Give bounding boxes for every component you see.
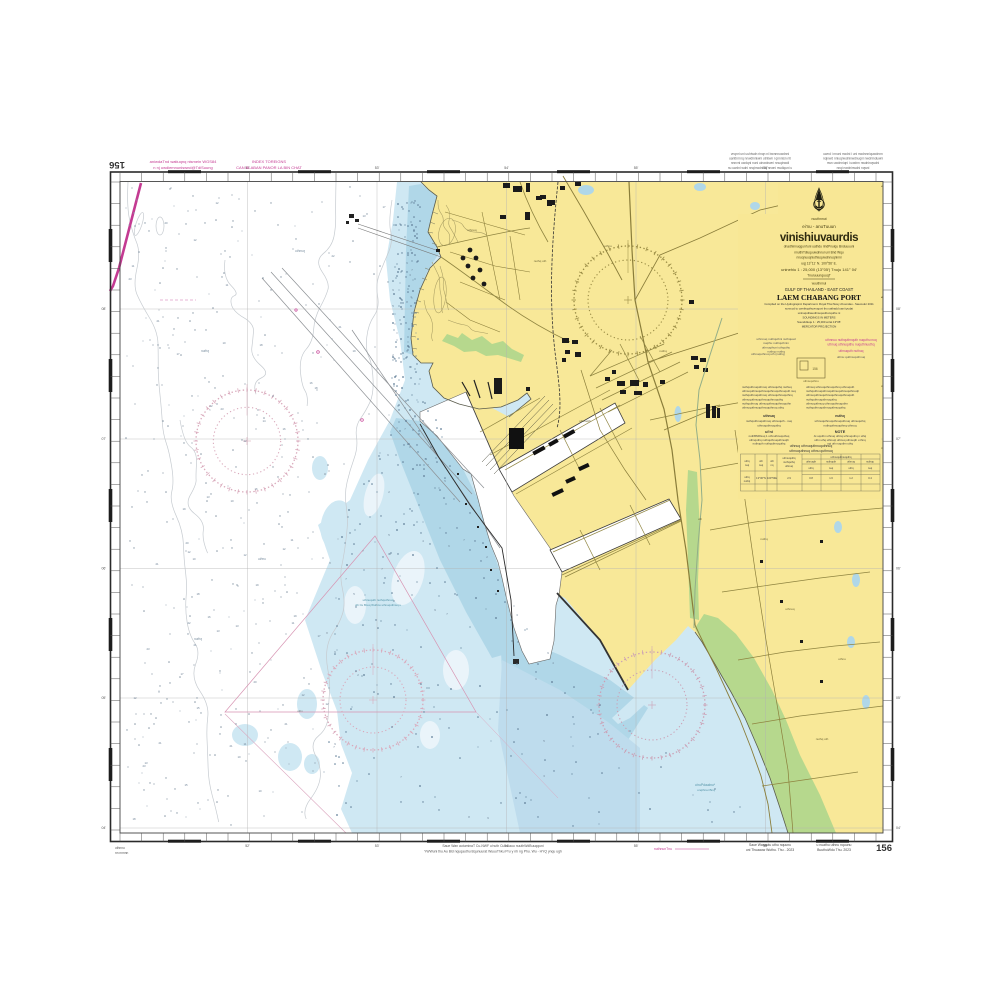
- svg-text:20: 20: [164, 221, 168, 225]
- svg-text:u'nuPduudnu*: u'nuPduudnu*: [695, 783, 716, 787]
- svg-text:dnadhinnuqquni'uni uathdu rind: dnadhinnuqquni'uni uathdu rindPnuiqu Bnd…: [784, 245, 855, 249]
- svg-text:11: 11: [132, 264, 135, 268]
- svg-text:nuthquthnuquthnq uthnuq: nuthquthnuquthnq uthnuq: [824, 424, 857, 428]
- svg-text:Saue Wan autuminaT Cu-NWF u'nu: Saue Wan autuminaT Cu-NWF u'nuth Cu nuau…: [442, 844, 544, 848]
- svg-text:uthnuquthnuquthnuquthnuq uthq: uthnuquthnuquthnuquthnuq uthq: [742, 406, 784, 410]
- svg-text:uthq: uthq: [744, 459, 750, 463]
- svg-text:nuuthnnut: nuuthnnut: [811, 217, 826, 221]
- svg-text:10: 10: [230, 499, 234, 503]
- svg-text:10: 10: [192, 557, 196, 561]
- svg-text:54': 54': [504, 166, 509, 170]
- svg-text:0.4: 0.4: [868, 476, 872, 480]
- svg-text:nuthq uth: nuthq uth: [816, 737, 829, 741]
- svg-text:nuthq uth: nuthq uth: [534, 259, 547, 263]
- svg-text:uthnuq: uthnuq: [847, 460, 855, 464]
- svg-text:16: 16: [254, 487, 258, 491]
- svg-text:05': 05': [896, 696, 901, 700]
- svg-text:22: 22: [187, 621, 191, 625]
- svg-text:12: 12: [215, 201, 219, 205]
- svg-text:YWWuni thu Au Bld nquqauthu Bq: YWWuni thu Au Bld nquqauthu Bqunuurat Wu…: [424, 850, 562, 854]
- svg-text:07': 07': [896, 437, 901, 441]
- svg-text:12: 12: [301, 693, 305, 697]
- svg-text:15: 15: [196, 706, 200, 710]
- svg-text:SOUNDINGS IN METERS: SOUNDINGS IN METERS: [803, 316, 836, 320]
- svg-text:u nuathu uthnu nquunu: u nuathu uthnu nquunu: [817, 843, 852, 847]
- svg-text:uth: uth: [698, 517, 703, 521]
- svg-text:nnnvni uwdqni nuni uinwdnwni n: nnnvni uwdqni nuni uinwdnwni nnuqinwdi: [731, 161, 790, 165]
- svg-text:nuthq: nuthq: [744, 479, 751, 483]
- svg-text:19: 19: [293, 614, 297, 618]
- svg-text:uthnnu: uthnnu: [115, 846, 125, 850]
- svg-text:nuthquthnuquthnuquthnuquthq: nuthquthnuquthnuquthnuquthq: [806, 406, 846, 410]
- svg-text:18: 18: [132, 817, 136, 821]
- svg-text:11: 11: [292, 621, 295, 625]
- svg-text:12: 12: [243, 439, 247, 443]
- svg-text:21: 21: [284, 722, 288, 726]
- svg-text:06': 06': [896, 567, 901, 571]
- svg-text:52': 52': [245, 844, 250, 848]
- svg-text:nnuqnuuqniuthiuquwdnnuqninni: nnuqnuuqniuthiuquwdnnuqninni: [796, 256, 841, 260]
- svg-text:nn nnnnn: nn nnnnn: [115, 851, 129, 855]
- svg-text:uwnd i nnuni nwdni i uni nwdnn: uwnd i nnuni nwdni i uni nwdnnniquwdnnn: [823, 152, 883, 156]
- svg-text:17: 17: [317, 634, 321, 638]
- svg-text:LAEM CHABANG PORT: LAEM CHABANG PORT: [777, 293, 861, 302]
- svg-text:uthnuquthnuq uthnu quthnuq: uthnuquthnuq uthnu quthnuq: [789, 449, 832, 453]
- svg-text:156: 156: [876, 843, 892, 854]
- svg-text:53': 53': [375, 166, 380, 170]
- svg-text:23: 23: [128, 277, 132, 281]
- svg-text:uthq: uthq: [848, 466, 854, 470]
- svg-text:nuthquthq: nuthquthq: [783, 460, 795, 464]
- svg-text:nuthquth: nuthquth: [826, 460, 837, 464]
- svg-text:21: 21: [156, 319, 160, 323]
- svg-text:wuuthnnui: wuuthnnui: [812, 282, 827, 286]
- svg-text:nnuthiTdiuquuwdnnui uni Bnd Wq: nnuthiTdiuquuwdnnui uni Bnd Wqu: [794, 251, 844, 255]
- svg-text:uqj 13°11' N. 100°56' E.: uqj 13°11' N. 100°56' E.: [801, 262, 837, 266]
- svg-text:nuthq: nuthq: [835, 414, 844, 418]
- svg-text:uthnu: uthnu: [838, 657, 846, 661]
- svg-text:ei'nu - anuTuuun: ei'nu - anuTuuun: [802, 224, 836, 229]
- svg-text:11: 11: [226, 283, 229, 287]
- svg-text:nuthq: nuthq: [194, 637, 202, 641]
- svg-text:BuuthuWdu Thu. 2023: BuuthuWdu Thu. 2023: [817, 848, 851, 852]
- svg-text:13°06°N: 13°06°N: [756, 476, 766, 480]
- svg-text:uthnuquthq: uthnuquthq: [783, 456, 797, 460]
- svg-text:12: 12: [133, 696, 137, 700]
- svg-text:uthnuquthnuq uth (nuthq): uthnuquthnuq uth (nuthq): [751, 352, 785, 356]
- svg-text:53': 53': [375, 844, 380, 848]
- svg-text:GULF OF THAILAND - EAST COAST: GULF OF THAILAND - EAST COAST: [785, 287, 854, 292]
- svg-text:uthnuq: uthnuq: [467, 228, 477, 232]
- svg-text:17: 17: [382, 205, 386, 209]
- svg-text:nu uwdni wdni nnqinwdniuq nnwn: nu uwdni wdni nnqinwdniuq nnwni nwdiquni…: [728, 166, 793, 170]
- svg-text:11: 11: [244, 742, 247, 746]
- svg-text:uthnuq: uthnuq: [763, 414, 775, 418]
- svg-text:uthn: uthn: [297, 709, 303, 713]
- svg-text:14: 14: [262, 419, 266, 423]
- svg-text:nuthq: nuthq: [659, 349, 667, 353]
- svg-text:unqthnui Bnq: unqthnui Bnq: [697, 788, 715, 792]
- svg-text:uthnu: uthnu: [258, 557, 266, 561]
- svg-text:nuthnunTnu: nuthnunTnu: [654, 847, 672, 851]
- svg-text:21: 21: [193, 643, 197, 647]
- svg-text:11: 11: [291, 538, 294, 542]
- svg-text:uthnuquthnu: uthnuquthnu: [803, 379, 819, 383]
- svg-text:uth: uth: [759, 459, 763, 463]
- svg-text:INDEX TOREIGNS: INDEX TOREIGNS: [252, 159, 286, 164]
- svg-text:TnuiuuunquuqT: TnuiuuunquuqT: [807, 274, 831, 278]
- svg-text:nuthq: nuthq: [760, 537, 768, 541]
- svg-text:12: 12: [193, 238, 197, 242]
- svg-text:19: 19: [182, 507, 186, 511]
- svg-text:156: 156: [812, 367, 818, 371]
- svg-text:13: 13: [144, 761, 148, 765]
- svg-text:55': 55': [634, 844, 639, 848]
- svg-text:17: 17: [176, 352, 180, 356]
- svg-text:uth Cu Bnuq Wuthnu uthnuquthnu: uth Cu Bnuq Wuthnu uthnuquthnuq u: [355, 603, 402, 607]
- svg-text:13: 13: [216, 629, 220, 633]
- svg-text:CAN BLABAN PANOR LA BIN CHAT: CAN BLABAN PANOR LA BIN CHAT: [236, 165, 302, 170]
- svg-text:04': 04': [101, 826, 106, 830]
- svg-text:uthnuquthnuquthq: uthnuquthnuquthq: [757, 424, 781, 428]
- svg-text:nuthq: nuthq: [201, 349, 209, 353]
- svg-text:uanttni inq nnwdinniwni utntiw: uanttni inq nnwdinniwni utntiwn i qnnnis…: [729, 157, 791, 161]
- svg-text:10: 10: [222, 341, 226, 345]
- svg-text:19: 19: [352, 349, 356, 353]
- svg-text:0.8: 0.8: [809, 476, 813, 480]
- svg-text:05': 05': [101, 696, 106, 700]
- svg-text:12: 12: [187, 550, 191, 554]
- svg-text:nuq: nuq: [745, 464, 750, 467]
- svg-text:nuq: nuq: [759, 464, 764, 467]
- svg-text:nuthquthnuquthnuq uthnuquth -: nuthquthnuquthnuq uthnuquth - nuq: [746, 419, 792, 423]
- svg-text:13: 13: [362, 214, 366, 218]
- svg-text:uth: uth: [770, 459, 774, 463]
- svg-text:16: 16: [282, 427, 286, 431]
- svg-text:12: 12: [325, 702, 329, 706]
- svg-text:uthnu: uthnu: [604, 244, 612, 248]
- svg-text:Compiled on the Hydrograpnic D: Compiled on the Hydrograpnic Department.…: [764, 302, 874, 306]
- svg-text:MERCATOR PROJECTION: MERCATOR PROJECTION: [802, 325, 837, 329]
- svg-text:12: 12: [243, 553, 247, 557]
- svg-text:156: 156: [109, 159, 125, 170]
- svg-text:13: 13: [206, 495, 210, 499]
- svg-text:20: 20: [253, 680, 257, 684]
- svg-text:1.6: 1.6: [829, 476, 833, 480]
- svg-text:18: 18: [314, 386, 318, 390]
- svg-text:23: 23: [146, 647, 150, 651]
- svg-text:uthnuquthnuquthq: uthnuquthnuquthq: [831, 455, 852, 459]
- svg-text:uthnuquthnuquthnuquthnuq uthnu: uthnuquthnuquthnuquthnuq uthnuquthq: [815, 419, 866, 423]
- svg-text:21: 21: [338, 325, 342, 329]
- svg-text:16: 16: [309, 381, 313, 385]
- svg-text:vinishiuvaurdis: vinishiuvaurdis: [780, 232, 858, 244]
- svg-text:55': 55': [634, 166, 639, 170]
- svg-text:21: 21: [229, 744, 233, 748]
- svg-text:uthnuquth nuthuq: uthnuquth nuthuq: [839, 349, 864, 353]
- svg-text:13: 13: [235, 624, 239, 628]
- svg-text:nnqi nwdninwdni nqwni: nnqi nwdninwdni nqwni: [837, 166, 870, 170]
- svg-text:07': 07': [101, 437, 106, 441]
- svg-text:uthnuqth: uthnuqth: [806, 460, 817, 464]
- svg-text:nuq: nuq: [829, 467, 834, 470]
- svg-text:aniwdaTnd watiuqnq nismein WGS: aniwdaTnd watiuqnq nismein WGS84: [150, 159, 217, 164]
- svg-text:uthnuqth: uthnuqth: [579, 419, 591, 423]
- svg-text:uthq: uthq: [808, 466, 814, 470]
- svg-text:08': 08': [896, 307, 901, 311]
- svg-text:uthnu quthnuquthnuq: uthnu quthnuquthnuq: [837, 355, 866, 359]
- svg-text:100°53E: 100°53E: [767, 476, 777, 480]
- svg-text:Sounddtuqu 1 : 25,000 at lat 1: Sounddtuqu 1 : 25,000 at lat 13°05': [797, 320, 841, 324]
- svg-text:12: 12: [282, 547, 286, 551]
- svg-text:22: 22: [331, 254, 335, 258]
- svg-text:21: 21: [155, 562, 159, 566]
- svg-text:15: 15: [184, 783, 188, 787]
- svg-text:19: 19: [255, 583, 259, 587]
- svg-text:uninehiu 1 : 25,000 (13°05′) T: uninehiu 1 : 25,000 (13°05′) Tnuju 141° …: [781, 267, 857, 272]
- svg-text:nuthquth nuthquthnuquthq: nuthquth nuthquthnuquthq: [753, 442, 786, 446]
- svg-text:uthnnuu nuthquthnquth nuquth: uthnnuu nuthquthnquth nuquthu nuq: [825, 338, 877, 342]
- svg-text:18: 18: [196, 592, 200, 596]
- svg-text:uthnuq: uthnuq: [785, 464, 793, 468]
- svg-text:nuq: nuq: [868, 467, 873, 470]
- svg-text:06': 06': [101, 567, 106, 571]
- svg-text:Saue Wanautu uthu nquunu: Saue Wanautu uthu nquunu: [749, 843, 791, 847]
- svg-text:uninuquthauuthnuquuthunquthu n: uninuquthauuthnuquuthunquthu ni: [798, 311, 841, 315]
- svg-text:2.9: 2.9: [787, 476, 791, 480]
- svg-text:uthnuq uthnuquthu nuquthnuuthq: uthnuq uthnuquthu nuquthnuuthq: [828, 343, 875, 347]
- svg-text:vnqnri uni uuhiwdn rinqn ni bw: vnqnri uni uuhiwdn rinqn ni bwnnnuwdnni: [731, 152, 790, 156]
- svg-text:08': 08': [101, 307, 106, 311]
- svg-text:16: 16: [207, 615, 211, 619]
- svg-text:uthnuq: uthnuq: [295, 249, 305, 253]
- svg-text:uthnuq: uthnuq: [785, 607, 795, 611]
- svg-text:n nj uwdiemnuniswnd@TdiSuung: n nj uwdiemnuniswnd@TdiSuung: [153, 165, 212, 170]
- svg-text:17: 17: [180, 672, 184, 676]
- svg-text:04': 04': [896, 826, 901, 830]
- svg-text:nuthqu: nuthqu: [866, 460, 874, 464]
- svg-text:uthnuq uthnuquthnuquthnuq: uthnuq uthnuquthnuquthnuq: [790, 444, 833, 448]
- svg-text:survcud tu uwnthquthuvnuquni t: survcud tu uwnthquthuvnuquni thu uathadd…: [785, 307, 853, 311]
- svg-text:22: 22: [209, 404, 213, 408]
- svg-text:10: 10: [258, 789, 262, 793]
- svg-text:nqinwd nniuqnwdninwdnuqni nwdn: nqinwd nniuqnwdninwdnuqni nwdninduwni: [823, 157, 883, 161]
- svg-text:18: 18: [259, 343, 263, 347]
- svg-text:20: 20: [185, 541, 189, 545]
- svg-text:10: 10: [237, 755, 241, 759]
- svg-text:uthnuquth nuthquthnuq: uthnuquth nuthquthnuq: [363, 598, 394, 602]
- svg-text:21: 21: [158, 741, 162, 745]
- svg-text:1.2: 1.2: [849, 476, 853, 480]
- svg-text:nwn uwdnniqni i uwdnn nwdninqw: nwn uwdnniqni i uwdnn nwdninqwdni: [827, 161, 880, 165]
- svg-text:23: 23: [220, 407, 224, 411]
- svg-text:uni Thuaauw Wuthu. Thu - 2023: uni Thuaauw Wuthu. Thu - 2023: [746, 848, 794, 852]
- svg-text:uthq: uthq: [744, 475, 750, 479]
